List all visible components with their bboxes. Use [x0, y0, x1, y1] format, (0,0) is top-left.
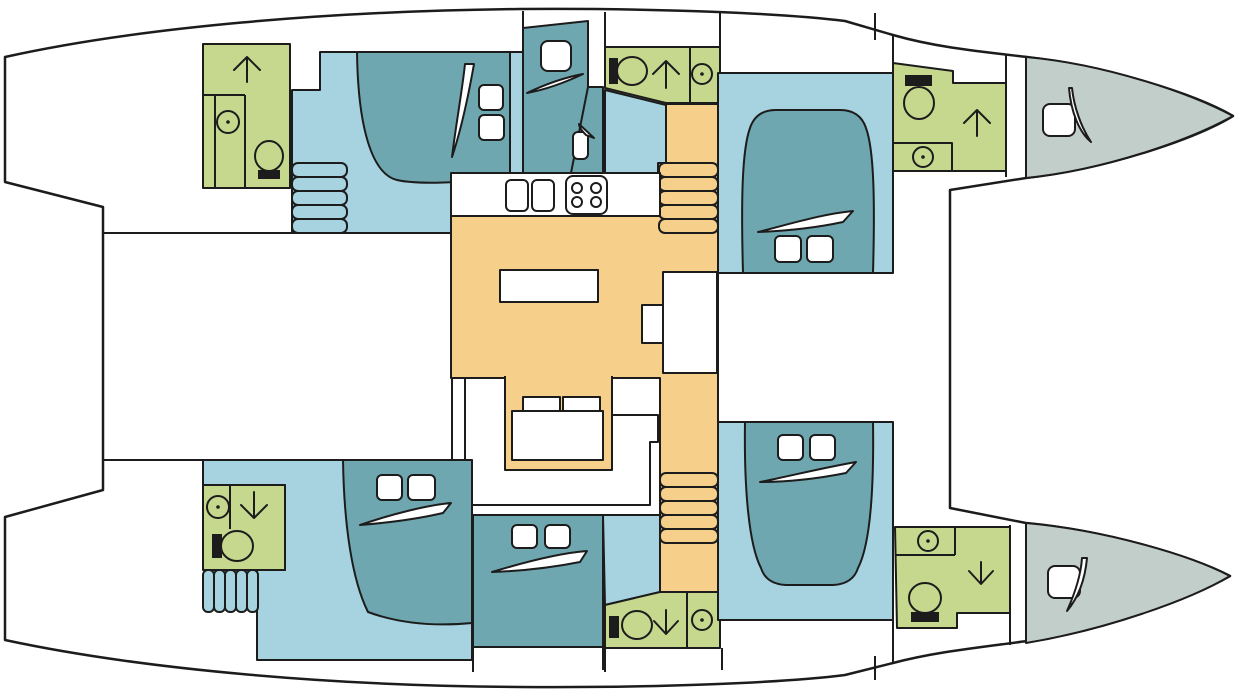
starboard-forward-cabin — [718, 422, 893, 620]
pillow — [541, 41, 571, 71]
pillow — [775, 236, 801, 262]
pillow — [377, 475, 402, 500]
hull-steps — [203, 570, 258, 612]
pillow — [810, 435, 835, 460]
pillow — [778, 435, 803, 460]
pillow — [512, 525, 537, 548]
starboard-forward-bathroom — [895, 527, 1010, 628]
galley-sink — [506, 180, 528, 211]
toilet-icon — [255, 141, 283, 179]
galley — [451, 173, 660, 216]
port-forward-cabin — [718, 73, 893, 273]
port-forward — [718, 57, 1233, 273]
pillow — [479, 115, 504, 140]
pillow — [545, 525, 570, 548]
hatch — [1043, 104, 1075, 136]
toilet-icon — [904, 75, 934, 119]
dining-table — [512, 411, 603, 460]
port-bow-locker — [1026, 57, 1233, 178]
deck-plan-svg — [0, 0, 1239, 695]
stove-icon — [566, 176, 607, 214]
toilet-icon — [609, 57, 647, 85]
pillow — [408, 475, 435, 500]
starboard-entry-bathroom — [605, 592, 720, 648]
port-stairway — [659, 163, 718, 233]
starboard-bow-locker — [1026, 523, 1230, 643]
galley-sink — [532, 180, 554, 211]
starboard-stairway — [660, 473, 718, 543]
seat — [563, 397, 600, 411]
toilet-icon — [909, 583, 941, 622]
starboard-corridor — [603, 515, 660, 605]
settee-area — [452, 376, 660, 517]
port-corridor — [605, 90, 666, 173]
galley-counter — [451, 173, 660, 216]
port-aft-bathroom — [203, 44, 290, 188]
island-counter — [500, 270, 598, 302]
hull-steps — [292, 163, 347, 233]
toilet-icon — [212, 531, 253, 561]
pillow — [573, 132, 588, 159]
starboard-mid-cabin — [473, 515, 603, 647]
pillow — [479, 85, 503, 110]
pillow — [807, 236, 833, 262]
seat — [523, 397, 560, 411]
catamaran-floor-plan — [0, 0, 1239, 695]
